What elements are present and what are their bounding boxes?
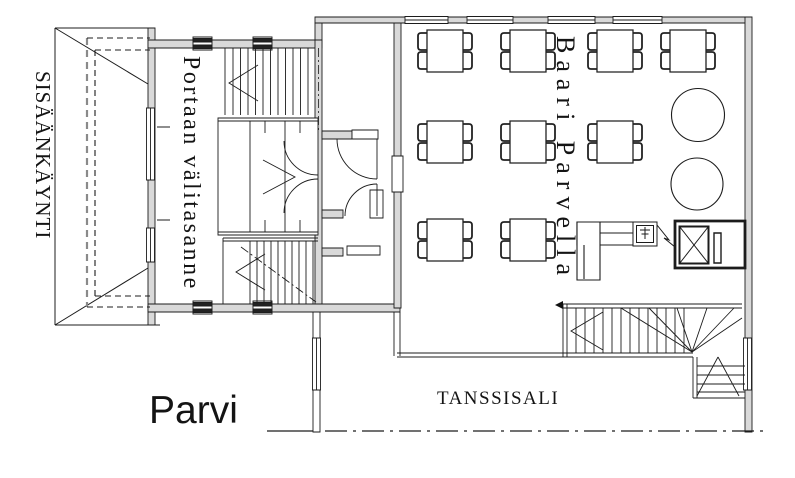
round-tables	[671, 89, 725, 211]
upper-stair-flight	[225, 48, 308, 115]
lower-stair-flight	[223, 238, 318, 304]
sink	[633, 222, 657, 246]
label-dance-hall: TANSSISALI	[437, 388, 559, 410]
label-stair-landing: Portaan välitasanne	[177, 56, 204, 291]
balcony-stairs	[555, 301, 745, 398]
floor-plan: SISÄÄNKÄYNTI Portaan välitasanne Baari P…	[0, 0, 795, 478]
vestibule	[322, 130, 383, 256]
break-line	[657, 225, 675, 247]
entrance-canopy	[55, 28, 160, 325]
bar-counter	[577, 222, 634, 280]
label-bar-loft: Baari Parvella	[550, 36, 580, 282]
floor-plan-drawing	[0, 0, 795, 478]
lower-winder	[693, 357, 745, 398]
label-floor-name: Parvi	[149, 389, 238, 433]
label-entrance: SISÄÄNKÄYNTI	[30, 71, 55, 239]
door-swing-upper	[337, 139, 377, 179]
dumbwaiter	[675, 221, 745, 268]
stair-landing-block	[218, 118, 318, 235]
